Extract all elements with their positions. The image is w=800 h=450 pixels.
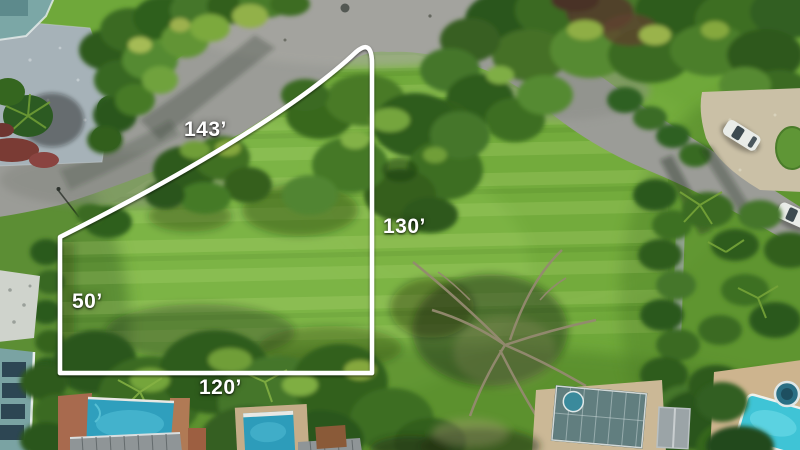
stone-paving — [0, 270, 40, 342]
pool-center-right — [235, 404, 309, 450]
dimension-label-right: 130’ — [383, 215, 426, 239]
wood-pergola — [315, 425, 346, 449]
screened-pool-enclosure — [552, 386, 646, 448]
gray-shed — [657, 407, 690, 449]
aerial-lot-photo: 143’ 130’ 50’ 120’ — [0, 0, 800, 450]
spa-in-enclosure — [562, 391, 584, 413]
dimension-label-bottom: 120’ — [199, 376, 242, 400]
dimension-label-left: 50’ — [72, 290, 103, 314]
dimension-label-top: 143’ — [184, 118, 227, 142]
driveway-grass-island — [776, 127, 800, 169]
manhole-cover — [341, 4, 350, 13]
